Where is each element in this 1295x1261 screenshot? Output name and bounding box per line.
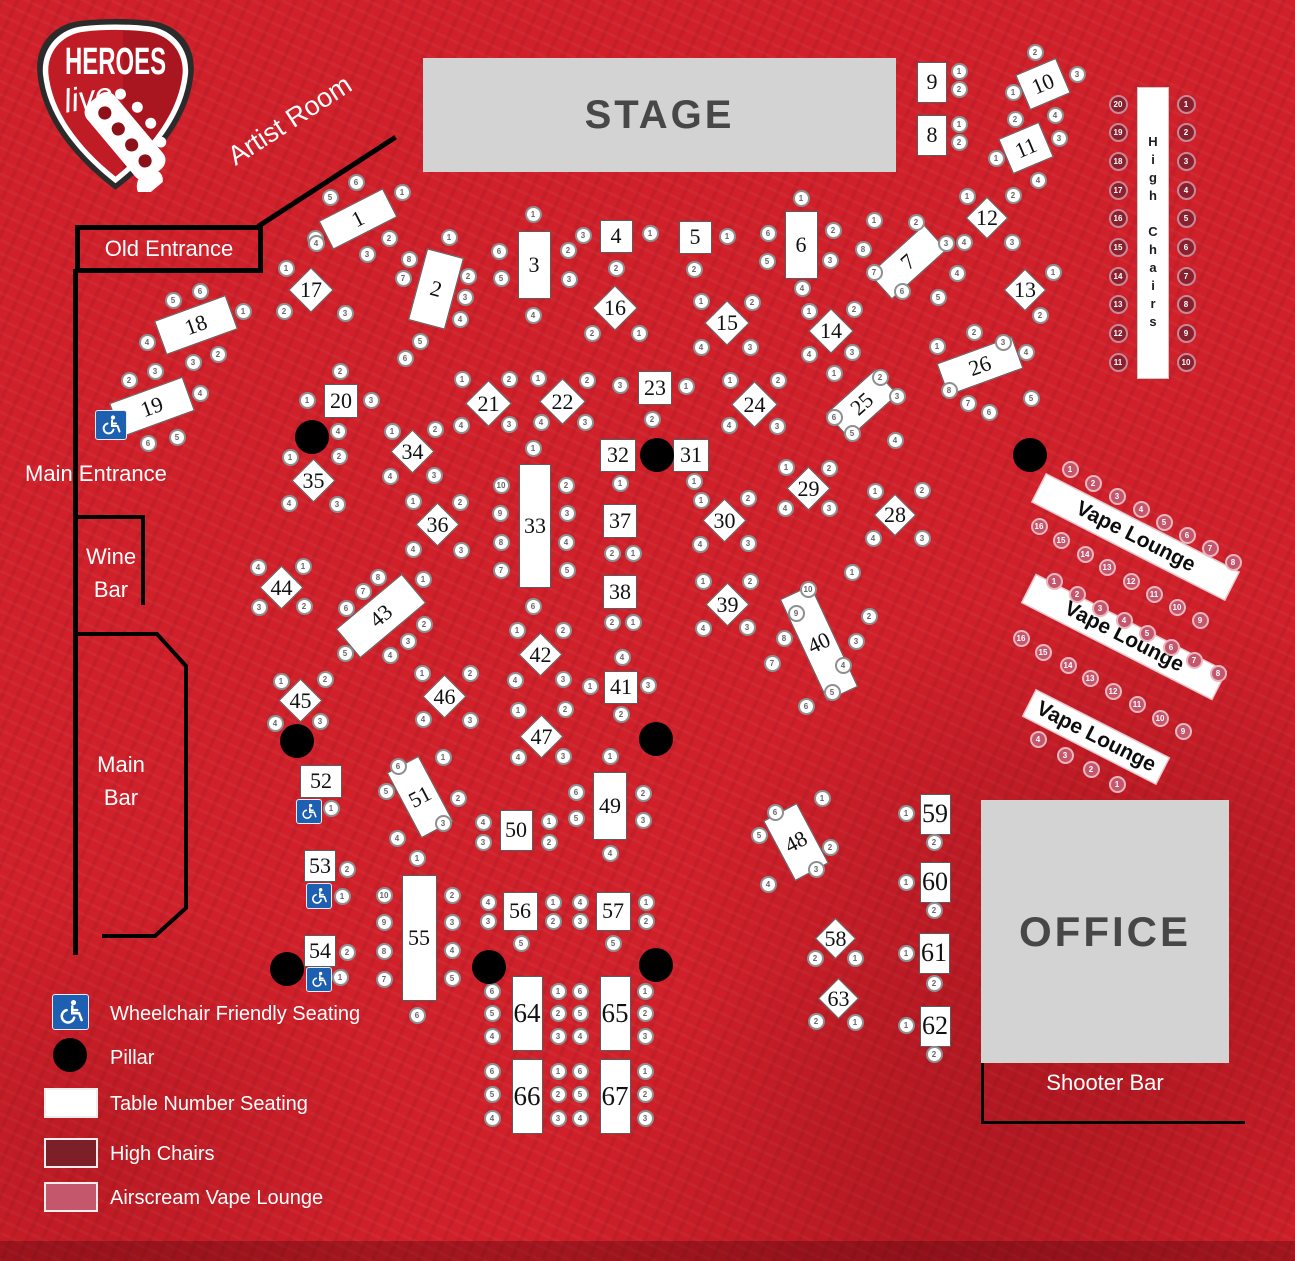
- seat-3-table-46[interactable]: 3: [462, 712, 479, 729]
- seat-9-table-33[interactable]: 9: [492, 505, 509, 522]
- seat-1-table-16[interactable]: 1: [631, 325, 648, 342]
- seat-2-table-48[interactable]: 2: [822, 839, 839, 856]
- seat-2-table-43[interactable]: 2: [416, 616, 433, 633]
- seat-1-table-56[interactable]: 1: [545, 894, 562, 911]
- seat-1-table-65[interactable]: 1: [637, 983, 654, 1000]
- seat-2-table-1[interactable]: 2: [381, 230, 398, 247]
- seat-1-table-34[interactable]: 1: [384, 423, 401, 440]
- seat-5-table-51[interactable]: 5: [378, 783, 395, 800]
- vape-seat-3-lounge-2[interactable]: 3: [1092, 600, 1109, 617]
- high-chair-seat-16[interactable]: 16: [1109, 209, 1128, 228]
- seat-2-table-34[interactable]: 2: [427, 421, 444, 438]
- seat-4-table-12[interactable]: 4: [956, 234, 973, 251]
- seat-5-table-64[interactable]: 5: [484, 1005, 501, 1022]
- seat-3-table-66[interactable]: 3: [550, 1110, 567, 1127]
- seat-1-table-61[interactable]: 1: [898, 945, 915, 962]
- seat-4-table-35[interactable]: 4: [281, 495, 298, 512]
- seat-4-table-41[interactable]: 4: [614, 649, 631, 666]
- table-67[interactable]: 67: [600, 1059, 631, 1134]
- vape-seat-1-lounge-3[interactable]: 1: [1109, 776, 1126, 793]
- seat-1-table-58[interactable]: 1: [847, 950, 864, 967]
- seat-1-table-54[interactable]: 1: [332, 969, 349, 986]
- seat-3-table-11[interactable]: 3: [1051, 130, 1068, 147]
- seat-6-table-1[interactable]: 6: [348, 174, 365, 191]
- high-chair-seat-12[interactable]: 12: [1109, 324, 1128, 343]
- seat-1-table-60[interactable]: 1: [898, 874, 915, 891]
- seat-6-table-43[interactable]: 6: [338, 600, 355, 617]
- table-23[interactable]: 23: [638, 371, 672, 405]
- seat-3-table-19[interactable]: 3: [147, 363, 164, 380]
- seat-1-table-8[interactable]: 1: [951, 116, 968, 133]
- seat-6-table-25[interactable]: 6: [826, 409, 843, 426]
- seat-1-table-66[interactable]: 1: [550, 1063, 567, 1080]
- table-6[interactable]: 6: [785, 211, 818, 279]
- vape-seat-12-lounge-1[interactable]: 12: [1123, 573, 1140, 590]
- seat-8-table-33[interactable]: 8: [493, 534, 510, 551]
- seat-4-table-20[interactable]: 4: [330, 423, 347, 440]
- seat-1-table-43[interactable]: 1: [415, 571, 432, 588]
- seat-3-table-42[interactable]: 3: [555, 671, 572, 688]
- seat-7-table-40[interactable]: 7: [764, 655, 781, 672]
- seat-6-table-48[interactable]: 6: [767, 804, 784, 821]
- seat-1-table-29[interactable]: 1: [778, 459, 795, 476]
- seat-6-table-26[interactable]: 6: [981, 404, 998, 421]
- high-chair-seat-15[interactable]: 15: [1109, 238, 1128, 257]
- seat-3-table-40[interactable]: 3: [848, 633, 865, 650]
- seat-1-table-44[interactable]: 1: [295, 558, 312, 575]
- seat-4-table-40[interactable]: 4: [835, 657, 852, 674]
- seat-2-table-57[interactable]: 2: [638, 913, 655, 930]
- high-chair-seat-3[interactable]: 3: [1177, 152, 1196, 171]
- vape-seat-3-lounge-3[interactable]: 3: [1057, 747, 1074, 764]
- seat-5-table-25[interactable]: 5: [844, 425, 861, 442]
- seat-5-table-66[interactable]: 5: [484, 1086, 501, 1103]
- seat-9-table-40[interactable]: 9: [788, 605, 805, 622]
- seat-5-table-19[interactable]: 5: [169, 429, 186, 446]
- seat-2-table-59[interactable]: 2: [926, 834, 943, 851]
- table-8[interactable]: 8: [917, 115, 947, 156]
- seat-4-table-48[interactable]: 4: [760, 876, 777, 893]
- table-3[interactable]: 3: [518, 231, 551, 299]
- seat-2-table-4[interactable]: 2: [608, 260, 625, 277]
- table-9[interactable]: 9: [917, 62, 947, 103]
- seat-5-table-48[interactable]: 5: [751, 827, 768, 844]
- seat-1-table-22[interactable]: 1: [530, 370, 547, 387]
- seat-3-table-51[interactable]: 3: [435, 815, 452, 832]
- seat-5-table-26[interactable]: 5: [1023, 390, 1040, 407]
- seat-3-table-47[interactable]: 3: [555, 748, 572, 765]
- table-62[interactable]: 62: [920, 1006, 951, 1047]
- high-chair-seat-11[interactable]: 11: [1109, 353, 1128, 372]
- seat-4-table-49[interactable]: 4: [602, 845, 619, 862]
- seat-1-table-20[interactable]: 1: [299, 392, 316, 409]
- seat-3-table-28[interactable]: 3: [914, 530, 931, 547]
- vape-seat-5-lounge-1[interactable]: 5: [1156, 514, 1173, 531]
- seat-3-table-30[interactable]: 3: [740, 535, 757, 552]
- high-chair-seat-18[interactable]: 18: [1109, 152, 1128, 171]
- seat-2-table-55[interactable]: 2: [444, 887, 461, 904]
- high-chair-seat-5[interactable]: 5: [1177, 209, 1196, 228]
- vape-seat-15-lounge-2[interactable]: 15: [1035, 644, 1052, 661]
- table-64[interactable]: 64: [512, 976, 543, 1051]
- high-chair-seat-6[interactable]: 6: [1177, 238, 1196, 257]
- seat-4-table-15[interactable]: 4: [693, 339, 710, 356]
- seat-2-table-7[interactable]: 2: [908, 214, 925, 231]
- seat-4-table-30[interactable]: 4: [692, 536, 709, 553]
- vape-seat-16-lounge-1[interactable]: 16: [1031, 518, 1048, 535]
- seat-3-table-14[interactable]: 3: [844, 344, 861, 361]
- seat-1-table-53[interactable]: 1: [334, 888, 351, 905]
- table-65[interactable]: 65: [600, 976, 631, 1051]
- seat-2-table-26[interactable]: 2: [966, 324, 983, 341]
- seat-1-table-18[interactable]: 1: [235, 303, 252, 320]
- seat-9-table-55[interactable]: 9: [376, 914, 393, 931]
- seat-4-table-34[interactable]: 4: [382, 468, 399, 485]
- seat-2-table-67[interactable]: 2: [637, 1086, 654, 1103]
- seat-1-table-15[interactable]: 1: [693, 293, 710, 310]
- seat-4-table-7[interactable]: 4: [949, 265, 966, 282]
- table-60[interactable]: 60: [920, 862, 951, 903]
- table-61[interactable]: 61: [919, 933, 950, 974]
- seat-4-table-43[interactable]: 4: [382, 647, 399, 664]
- seat-1-table-23[interactable]: 1: [678, 378, 695, 395]
- table-56[interactable]: 56: [503, 892, 538, 931]
- high-chairs-strip[interactable]: High Chairs: [1137, 87, 1169, 379]
- seat-5-table-43[interactable]: 5: [337, 645, 354, 662]
- vape-seat-14-lounge-2[interactable]: 14: [1060, 657, 1077, 674]
- seat-1-table-47[interactable]: 1: [510, 702, 527, 719]
- high-chair-seat-13[interactable]: 13: [1109, 295, 1128, 314]
- seat-4-table-25[interactable]: 4: [887, 432, 904, 449]
- seat-2-table-30[interactable]: 2: [740, 490, 757, 507]
- high-chair-seat-8[interactable]: 8: [1177, 295, 1196, 314]
- seat-2-table-63[interactable]: 2: [808, 1013, 825, 1030]
- high-chair-seat-14[interactable]: 14: [1109, 267, 1128, 286]
- seat-4-table-10[interactable]: 4: [1047, 107, 1064, 124]
- seat-3-table-34[interactable]: 3: [426, 467, 443, 484]
- seat-2-table-66[interactable]: 2: [550, 1086, 567, 1103]
- seat-7-table-33[interactable]: 7: [493, 562, 510, 579]
- seat-5-table-2[interactable]: 5: [412, 333, 429, 350]
- seat-1-table-12[interactable]: 1: [959, 188, 976, 205]
- vape-seat-4-lounge-1[interactable]: 4: [1133, 501, 1150, 518]
- high-chair-seat-19[interactable]: 19: [1109, 123, 1128, 142]
- seat-3-table-29[interactable]: 3: [821, 500, 838, 517]
- seat-2-table-38[interactable]: 2: [604, 614, 621, 631]
- table-28[interactable]: 28: [874, 494, 916, 536]
- seat-8-table-40[interactable]: 8: [776, 630, 793, 647]
- seat-4-table-19[interactable]: 4: [192, 385, 209, 402]
- seat-1-table-4[interactable]: 1: [642, 225, 659, 242]
- vape-seat-4-lounge-2[interactable]: 4: [1116, 612, 1133, 629]
- seat-4-table-51[interactable]: 4: [389, 830, 406, 847]
- seat-3-table-3[interactable]: 3: [561, 271, 578, 288]
- seat-4-table-11[interactable]: 4: [1030, 172, 1047, 189]
- table-10[interactable]: 10: [1015, 58, 1070, 110]
- seat-2-table-53[interactable]: 2: [339, 861, 356, 878]
- table-17[interactable]: 17: [288, 267, 333, 312]
- seat-2-table-33[interactable]: 2: [558, 477, 575, 494]
- seat-4-table-67[interactable]: 4: [572, 1110, 589, 1127]
- seat-8-table-7[interactable]: 8: [855, 241, 872, 258]
- table-42[interactable]: 42: [518, 632, 562, 676]
- seat-3-table-26[interactable]: 3: [995, 334, 1012, 351]
- seat-4-table-57[interactable]: 4: [572, 894, 589, 911]
- seat-7-table-55[interactable]: 7: [376, 971, 393, 988]
- seat-3-table-65[interactable]: 3: [637, 1028, 654, 1045]
- seat-2-table-62[interactable]: 2: [926, 1046, 943, 1063]
- seat-8-table-43[interactable]: 8: [370, 569, 387, 586]
- seat-6-table-65[interactable]: 6: [572, 983, 589, 1000]
- seat-1-table-6[interactable]: 1: [793, 190, 810, 207]
- seat-4-table-66[interactable]: 4: [484, 1110, 501, 1127]
- seat-1-table-31[interactable]: 1: [686, 473, 703, 490]
- table-38[interactable]: 38: [603, 575, 637, 609]
- seat-1-table-7[interactable]: 1: [866, 212, 883, 229]
- seat-5-table-33[interactable]: 5: [559, 562, 576, 579]
- seat-3-table-41[interactable]: 3: [640, 677, 657, 694]
- seat-4-table-3[interactable]: 4: [525, 307, 542, 324]
- seat-1-table-11[interactable]: 1: [988, 150, 1005, 167]
- vape-seat-3-lounge-1[interactable]: 3: [1109, 488, 1126, 505]
- table-5[interactable]: 5: [679, 221, 712, 254]
- seat-4-table-17[interactable]: 4: [308, 235, 325, 252]
- seat-2-table-37[interactable]: 2: [604, 545, 621, 562]
- seat-1-table-50[interactable]: 1: [541, 813, 558, 830]
- vape-seat-9-lounge-1[interactable]: 9: [1192, 612, 1209, 629]
- seat-3-table-22[interactable]: 3: [577, 414, 594, 431]
- seat-10-table-40[interactable]: 10: [800, 581, 817, 598]
- seat-3-table-64[interactable]: 3: [550, 1028, 567, 1045]
- seat-4-table-29[interactable]: 4: [777, 500, 794, 517]
- seat-5-table-57[interactable]: 5: [605, 935, 622, 952]
- seat-3-table-21[interactable]: 3: [501, 416, 518, 433]
- seat-1-table-33[interactable]: 1: [525, 440, 542, 457]
- seat-2-table-18[interactable]: 2: [210, 346, 227, 363]
- seat-4-table-33[interactable]: 4: [558, 534, 575, 551]
- seat-2-table-22[interactable]: 2: [579, 372, 596, 389]
- vape-seat-8-lounge-2[interactable]: 8: [1210, 665, 1227, 682]
- seat-6-table-2[interactable]: 6: [397, 350, 414, 367]
- seat-1-table-37[interactable]: 1: [625, 545, 642, 562]
- seat-7-table-43[interactable]: 7: [355, 583, 372, 600]
- vape-seat-7-lounge-2[interactable]: 7: [1186, 652, 1203, 669]
- seat-3-table-33[interactable]: 3: [559, 505, 576, 522]
- vape-seat-14-lounge-1[interactable]: 14: [1077, 546, 1094, 563]
- seat-2-table-15[interactable]: 2: [744, 294, 761, 311]
- high-chair-seat-9[interactable]: 9: [1177, 324, 1196, 343]
- seat-3-table-50[interactable]: 3: [475, 834, 492, 851]
- seat-3-table-48[interactable]: 3: [808, 861, 825, 878]
- seat-3-table-7[interactable]: 3: [938, 235, 955, 252]
- seat-1-table-67[interactable]: 1: [637, 1063, 654, 1080]
- vape-seat-16-lounge-2[interactable]: 16: [1013, 630, 1030, 647]
- seat-3-table-10[interactable]: 3: [1069, 66, 1086, 83]
- seat-4-table-14[interactable]: 4: [801, 346, 818, 363]
- seat-1-table-3[interactable]: 1: [525, 206, 542, 223]
- seat-2-table-51[interactable]: 2: [450, 790, 467, 807]
- seat-8-table-26[interactable]: 8: [941, 382, 958, 399]
- seat-2-table-24[interactable]: 2: [770, 372, 787, 389]
- seat-2-table-49[interactable]: 2: [635, 785, 652, 802]
- seat-1-table-45[interactable]: 1: [273, 673, 290, 690]
- high-chair-seat-1[interactable]: 1: [1177, 95, 1196, 114]
- seat-1-table-62[interactable]: 1: [898, 1017, 915, 1034]
- seat-5-table-49[interactable]: 5: [568, 810, 585, 827]
- seat-1-table-17[interactable]: 1: [278, 260, 295, 277]
- seat-4-table-64[interactable]: 4: [484, 1028, 501, 1045]
- seat-4-table-21[interactable]: 4: [453, 417, 470, 434]
- seat-2-table-20[interactable]: 2: [332, 363, 349, 380]
- seat-1-table-41[interactable]: 1: [582, 678, 599, 695]
- seat-1-table-63[interactable]: 1: [847, 1014, 864, 1031]
- high-chair-seat-4[interactable]: 4: [1177, 181, 1196, 200]
- seat-1-table-36[interactable]: 1: [405, 493, 422, 510]
- seat-1-table-9[interactable]: 1: [951, 63, 968, 80]
- seat-6-table-18[interactable]: 6: [192, 283, 209, 300]
- seat-1-table-49[interactable]: 1: [602, 748, 619, 765]
- seat-4-table-28[interactable]: 4: [865, 530, 882, 547]
- seat-2-table-40[interactable]: 2: [861, 608, 878, 625]
- seat-2-table-3[interactable]: 2: [560, 242, 577, 259]
- seat-7-table-2[interactable]: 7: [395, 270, 412, 287]
- seat-4-table-46[interactable]: 4: [415, 711, 432, 728]
- seat-4-table-6[interactable]: 4: [794, 280, 811, 297]
- vape-seat-11-lounge-1[interactable]: 11: [1146, 586, 1163, 603]
- seat-2-table-16[interactable]: 2: [584, 325, 601, 342]
- seat-2-table-13[interactable]: 2: [1032, 307, 1049, 324]
- table-52[interactable]: 52: [300, 765, 342, 798]
- high-chair-seat-20[interactable]: 20: [1109, 95, 1128, 114]
- seat-3-table-25[interactable]: 3: [889, 388, 906, 405]
- table-55[interactable]: 55: [402, 875, 437, 1001]
- seat-3-table-55[interactable]: 3: [444, 914, 461, 931]
- vape-seat-2-lounge-2[interactable]: 2: [1069, 586, 1086, 603]
- seat-1-table-52[interactable]: 1: [323, 800, 340, 817]
- seat-1-table-59[interactable]: 1: [898, 805, 915, 822]
- seat-5-table-55[interactable]: 5: [444, 970, 461, 987]
- seat-2-table-2[interactable]: 2: [460, 268, 477, 285]
- vape-seat-12-lounge-2[interactable]: 12: [1105, 683, 1122, 700]
- seat-6-table-19[interactable]: 6: [140, 435, 157, 452]
- vape-seat-10-lounge-1[interactable]: 10: [1169, 599, 1186, 616]
- seat-2-table-41[interactable]: 2: [613, 706, 630, 723]
- seat-1-table-40[interactable]: 1: [844, 564, 861, 581]
- seat-1-table-10[interactable]: 1: [1005, 84, 1022, 101]
- table-49[interactable]: 49: [593, 772, 627, 840]
- seat-4-table-56[interactable]: 4: [480, 894, 497, 911]
- table-35[interactable]: 35: [291, 458, 335, 502]
- seat-5-table-3[interactable]: 5: [493, 270, 510, 287]
- seat-2-table-12[interactable]: 2: [1005, 187, 1022, 204]
- seat-3-table-39[interactable]: 3: [739, 619, 756, 636]
- seat-2-table-35[interactable]: 2: [331, 448, 348, 465]
- table-50[interactable]: 50: [500, 810, 533, 851]
- vape-seat-5-lounge-2[interactable]: 5: [1139, 625, 1156, 642]
- table-59[interactable]: 59: [920, 794, 951, 835]
- seat-2-table-8[interactable]: 2: [951, 134, 968, 151]
- seat-6-table-33[interactable]: 6: [525, 598, 542, 615]
- vape-seat-6-lounge-1[interactable]: 6: [1179, 527, 1196, 544]
- seat-2-table-64[interactable]: 2: [550, 1005, 567, 1022]
- seat-2-table-61[interactable]: 2: [926, 975, 943, 992]
- seat-7-table-7[interactable]: 7: [866, 264, 883, 281]
- seat-4-table-22[interactable]: 4: [533, 414, 550, 431]
- seat-4-table-39[interactable]: 4: [695, 620, 712, 637]
- seat-2-table-23[interactable]: 2: [644, 411, 661, 428]
- seat-3-table-57[interactable]: 3: [572, 913, 589, 930]
- seat-3-table-20[interactable]: 3: [363, 392, 380, 409]
- table-20[interactable]: 20: [324, 384, 358, 418]
- seat-2-table-28[interactable]: 2: [914, 482, 931, 499]
- seat-2-table-56[interactable]: 2: [545, 913, 562, 930]
- seat-2-table-6[interactable]: 2: [825, 222, 842, 239]
- seat-4-table-47[interactable]: 4: [510, 749, 527, 766]
- seat-2-table-65[interactable]: 2: [637, 1005, 654, 1022]
- seat-1-table-1[interactable]: 1: [394, 184, 411, 201]
- seat-2-table-10[interactable]: 2: [1027, 44, 1044, 61]
- vape-lounge-strip-2[interactable]: Vape Lounge: [1023, 576, 1226, 699]
- seat-3-table-12[interactable]: 3: [1004, 234, 1021, 251]
- seat-3-table-15[interactable]: 3: [742, 339, 759, 356]
- seat-3-table-4[interactable]: 3: [575, 227, 592, 244]
- seat-5-table-18[interactable]: 5: [165, 292, 182, 309]
- seat-4-table-65[interactable]: 4: [572, 1028, 589, 1045]
- vape-seat-13-lounge-1[interactable]: 13: [1099, 559, 1116, 576]
- seat-1-table-46[interactable]: 1: [414, 665, 431, 682]
- vape-seat-13-lounge-2[interactable]: 13: [1082, 670, 1099, 687]
- seat-1-table-32[interactable]: 1: [612, 475, 629, 492]
- table-54[interactable]: 54: [304, 935, 336, 967]
- seat-4-table-44[interactable]: 4: [250, 559, 267, 576]
- seat-1-table-35[interactable]: 1: [282, 449, 299, 466]
- seat-3-table-24[interactable]: 3: [769, 418, 786, 435]
- seat-1-table-2[interactable]: 1: [441, 229, 458, 246]
- vape-seat-1-lounge-1[interactable]: 1: [1062, 461, 1079, 478]
- seat-3-table-36[interactable]: 3: [453, 542, 470, 559]
- table-13[interactable]: 13: [1004, 269, 1046, 311]
- vape-seat-9-lounge-2[interactable]: 9: [1175, 723, 1192, 740]
- seat-6-table-40[interactable]: 6: [798, 698, 815, 715]
- seat-1-table-64[interactable]: 1: [550, 983, 567, 1000]
- seat-6-table-67[interactable]: 6: [572, 1063, 589, 1080]
- seat-1-table-48[interactable]: 1: [814, 790, 831, 807]
- seat-1-table-39[interactable]: 1: [695, 573, 712, 590]
- vape-seat-8-lounge-1[interactable]: 8: [1225, 554, 1242, 571]
- seat-6-table-6[interactable]: 6: [760, 225, 777, 242]
- seat-8-table-2[interactable]: 8: [401, 251, 418, 268]
- seat-2-table-54[interactable]: 2: [339, 944, 356, 961]
- seat-3-table-45[interactable]: 3: [312, 713, 329, 730]
- seat-3-table-23[interactable]: 3: [612, 377, 629, 394]
- seat-3-table-56[interactable]: 3: [480, 913, 497, 930]
- seat-2-table-39[interactable]: 2: [742, 573, 759, 590]
- seat-1-table-57[interactable]: 1: [638, 894, 655, 911]
- table-36[interactable]: 36: [415, 502, 459, 546]
- seat-2-table-17[interactable]: 2: [276, 303, 293, 320]
- seat-6-table-64[interactable]: 6: [484, 983, 501, 1000]
- table-31[interactable]: 31: [673, 439, 709, 472]
- seat-3-table-44[interactable]: 3: [251, 599, 268, 616]
- seat-5-table-40[interactable]: 5: [824, 684, 841, 701]
- seat-3-table-49[interactable]: 3: [635, 812, 652, 829]
- table-63[interactable]: 63: [817, 977, 858, 1018]
- seat-2-table-29[interactable]: 2: [821, 460, 838, 477]
- seat-4-table-42[interactable]: 4: [507, 672, 524, 689]
- seat-3-table-67[interactable]: 3: [637, 1110, 654, 1127]
- seat-3-table-6[interactable]: 3: [822, 252, 839, 269]
- table-53[interactable]: 53: [304, 850, 336, 882]
